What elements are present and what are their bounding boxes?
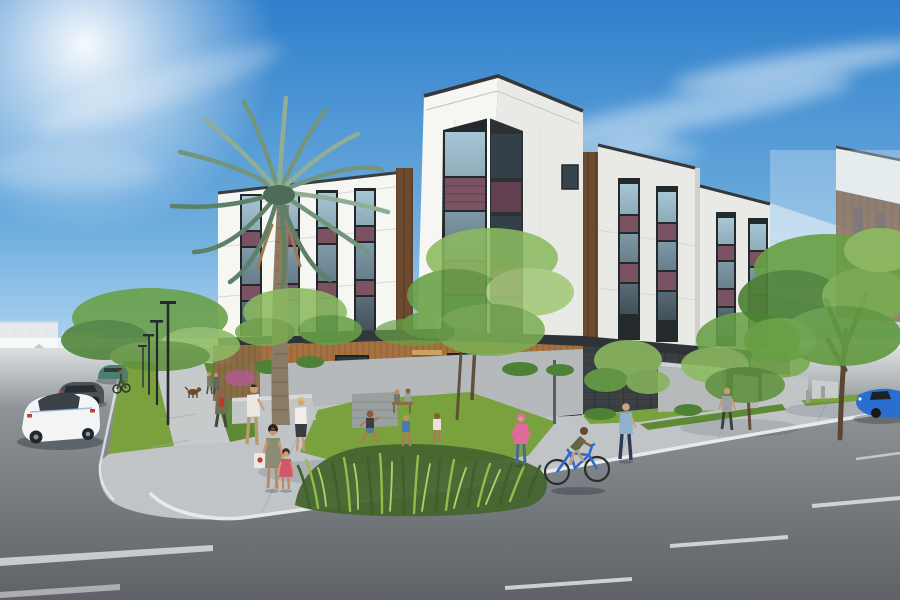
shadow bbox=[265, 489, 279, 493]
head bbox=[724, 388, 731, 395]
shirt bbox=[247, 394, 260, 417]
dark-skirt bbox=[295, 424, 307, 437]
foliage-blob bbox=[375, 318, 455, 346]
head bbox=[622, 403, 630, 411]
head bbox=[283, 451, 288, 456]
red-shirt bbox=[219, 398, 224, 407]
shadow bbox=[280, 489, 292, 493]
head bbox=[218, 388, 225, 395]
shadow bbox=[515, 464, 527, 468]
taillight bbox=[27, 414, 32, 418]
lamp-head bbox=[150, 320, 163, 323]
car-glass bbox=[64, 385, 97, 393]
palm-crown-center bbox=[263, 185, 295, 205]
head bbox=[406, 389, 411, 394]
dog-head bbox=[197, 387, 201, 391]
torso bbox=[394, 394, 400, 402]
lamp-head bbox=[143, 334, 154, 336]
foliage-blob bbox=[626, 370, 670, 394]
bougainvillea bbox=[225, 370, 255, 386]
lamp-head bbox=[160, 301, 176, 304]
blue-shirt bbox=[619, 412, 633, 434]
lamp-head bbox=[138, 345, 147, 347]
torso bbox=[405, 393, 411, 401]
car-glass bbox=[870, 391, 891, 400]
headlight bbox=[858, 397, 861, 400]
white-top bbox=[433, 419, 441, 430]
foliage-blob bbox=[110, 341, 210, 371]
torso bbox=[214, 377, 219, 388]
shadow bbox=[551, 487, 605, 495]
taillight bbox=[59, 390, 62, 393]
white-top bbox=[295, 407, 307, 424]
blue-sports-car bbox=[853, 389, 900, 424]
block-one-face bbox=[598, 145, 695, 350]
head bbox=[403, 415, 409, 421]
head bbox=[214, 373, 218, 377]
shadow bbox=[619, 460, 633, 464]
foliage-blob bbox=[705, 367, 785, 403]
bay-glass bbox=[356, 191, 374, 333]
blue-top bbox=[402, 421, 410, 432]
bollard bbox=[806, 390, 810, 403]
torso bbox=[207, 376, 212, 387]
bay-glass bbox=[620, 184, 638, 314]
wood-siding-texture bbox=[583, 152, 598, 344]
foliage-blob bbox=[298, 315, 362, 345]
head bbox=[207, 372, 211, 376]
head bbox=[434, 413, 440, 419]
tote-red-print bbox=[257, 457, 262, 462]
foliage-blob bbox=[744, 318, 816, 362]
head bbox=[119, 370, 123, 374]
rider-head bbox=[580, 427, 588, 435]
head bbox=[519, 417, 524, 422]
foliage-blob bbox=[584, 368, 628, 392]
small-window bbox=[562, 165, 578, 189]
bay-glass bbox=[658, 192, 676, 320]
pink-dress bbox=[279, 459, 293, 477]
head bbox=[367, 411, 374, 418]
block-step-return bbox=[695, 168, 700, 352]
hubcap bbox=[34, 435, 39, 440]
architectural-rendering bbox=[0, 0, 900, 600]
hubcap bbox=[86, 432, 91, 437]
foliage-blob bbox=[235, 318, 295, 346]
wood-siding-texture bbox=[396, 168, 413, 340]
gray-tank bbox=[722, 396, 732, 412]
bollard bbox=[821, 386, 825, 398]
table bbox=[392, 402, 413, 405]
hoodie bbox=[514, 424, 528, 444]
wheel bbox=[871, 408, 881, 418]
head bbox=[298, 400, 304, 406]
taillight bbox=[90, 409, 95, 413]
head bbox=[395, 390, 400, 395]
rendering-stage bbox=[0, 0, 900, 600]
